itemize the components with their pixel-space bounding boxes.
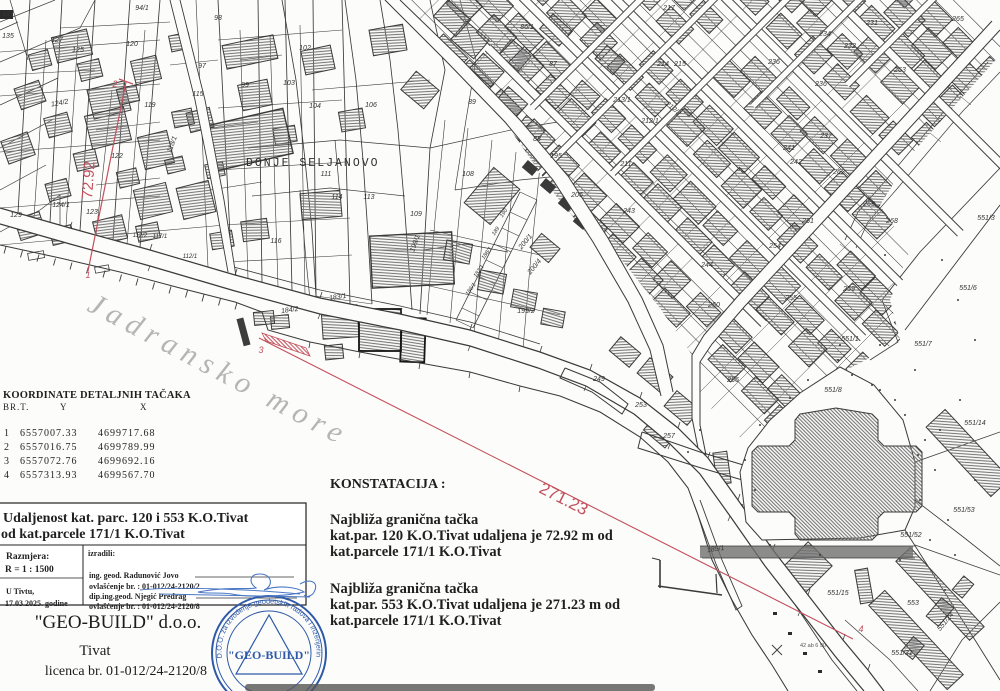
svg-text:2: 2 xyxy=(111,79,117,89)
svg-text:DONJE SELJANOVO: DONJE SELJANOVO xyxy=(246,157,380,170)
svg-text:115: 115 xyxy=(192,91,203,98)
svg-text:od kat.parcele 171/1 K.O.Tiva: od kat.parcele 171/1 K.O.Tivat xyxy=(1,527,185,542)
svg-text:116: 116 xyxy=(270,238,281,245)
svg-text:42 ab 6 90: 42 ab 6 90 xyxy=(800,643,826,649)
svg-text:Udaljenost kat. parc. 120 i: Udaljenost kat. parc. 120 i 553 K.O.Tiva… xyxy=(3,511,249,526)
svg-text:Najbliža granična tačka: Najbliža granična tačka xyxy=(330,512,479,528)
svg-text:551/1: 551/1 xyxy=(841,336,859,343)
svg-text:4: 4 xyxy=(4,470,10,481)
svg-text:1: 1 xyxy=(4,428,10,439)
svg-text:114: 114 xyxy=(331,194,342,201)
svg-text:125: 125 xyxy=(72,47,84,54)
svg-text:123: 123 xyxy=(86,209,98,216)
svg-text:250: 250 xyxy=(707,302,720,309)
svg-text:269: 269 xyxy=(862,201,875,208)
svg-text:232: 232 xyxy=(843,43,856,50)
svg-text:Razmjera:: Razmjera: xyxy=(6,552,49,562)
svg-text:Tivat: Tivat xyxy=(79,643,111,659)
svg-text:izradili:: izradili: xyxy=(88,549,115,558)
svg-text:551/8: 551/8 xyxy=(824,387,842,394)
svg-text:2: 2 xyxy=(4,442,10,453)
svg-text:88: 88 xyxy=(533,136,541,143)
svg-text:6557007.33: 6557007.33 xyxy=(20,428,78,439)
svg-text:4699692.16: 4699692.16 xyxy=(98,456,156,467)
svg-text:ovlašćenje br. : 01-012/24-212: ovlašćenje br. : 01-012/24-2120/8 xyxy=(89,602,200,611)
svg-text:212/1: 212/1 xyxy=(640,118,659,125)
svg-text:4699567.70: 4699567.70 xyxy=(98,470,156,481)
svg-text:72.92: 72.92 xyxy=(79,161,99,200)
svg-text:4699717.68: 4699717.68 xyxy=(98,428,156,439)
svg-text:551/53: 551/53 xyxy=(953,507,975,514)
svg-text:R = 1 : 1500: R = 1 : 1500 xyxy=(5,565,54,575)
svg-text:6557016.75: 6557016.75 xyxy=(20,442,78,453)
svg-text:551/14: 551/14 xyxy=(964,420,986,427)
svg-text:KONSTATACIJA :: KONSTATACIJA : xyxy=(330,477,446,492)
svg-text:551/6: 551/6 xyxy=(959,285,977,292)
svg-text:kat.par. 120 K.O.Tivat udal: kat.par. 120 K.O.Tivat udaljena je 72.92… xyxy=(330,528,613,544)
svg-text:217: 217 xyxy=(662,5,676,12)
svg-text:dip.ing.geod. Njegić Predrag: dip.ing.geod. Njegić Predrag xyxy=(89,592,186,601)
svg-text:87: 87 xyxy=(549,61,558,68)
svg-text:120: 120 xyxy=(126,41,138,48)
svg-text:254: 254 xyxy=(768,243,781,250)
svg-text:253: 253 xyxy=(634,402,647,409)
svg-text:551/52: 551/52 xyxy=(900,532,922,539)
svg-text:241: 241 xyxy=(782,145,795,152)
svg-text:127: 127 xyxy=(51,37,64,44)
svg-text:106: 106 xyxy=(365,102,377,109)
svg-text:259: 259 xyxy=(842,286,855,293)
svg-text:129: 129 xyxy=(10,212,22,219)
svg-text:X: X xyxy=(140,402,147,412)
svg-text:94/1: 94/1 xyxy=(135,5,149,12)
svg-text:BR.T.: BR.T. xyxy=(3,402,29,412)
svg-text:551/3: 551/3 xyxy=(977,215,995,222)
svg-text:"GEO-BUILD": "GEO-BUILD" xyxy=(228,648,310,662)
svg-text:117/1: 117/1 xyxy=(153,234,168,240)
svg-text:108: 108 xyxy=(462,171,474,178)
svg-text:kat.parcele 171/1 K.O.Tivat: kat.parcele 171/1 K.O.Tivat xyxy=(330,544,502,560)
svg-text:119: 119 xyxy=(144,102,155,109)
svg-text:89: 89 xyxy=(468,99,476,106)
svg-text:6557313.93: 6557313.93 xyxy=(20,470,78,481)
svg-text:3: 3 xyxy=(258,345,263,355)
svg-text:551/31: 551/31 xyxy=(891,650,913,657)
svg-text:99: 99 xyxy=(241,82,249,89)
svg-text:4699789.99: 4699789.99 xyxy=(98,442,156,453)
svg-text:242: 242 xyxy=(789,159,802,166)
svg-text:86/1: 86/1 xyxy=(520,24,534,31)
svg-text:551/7: 551/7 xyxy=(914,341,933,348)
svg-text:243: 243 xyxy=(622,208,635,215)
svg-text:262: 262 xyxy=(832,169,845,176)
svg-text:3: 3 xyxy=(4,456,10,467)
svg-text:215: 215 xyxy=(673,61,686,68)
svg-text:kat.parcele 171/1 K.O.Tivat: kat.parcele 171/1 K.O.Tivat xyxy=(330,613,502,629)
svg-text:Y: Y xyxy=(60,402,67,412)
svg-text:122: 122 xyxy=(111,153,123,160)
svg-text:124/1: 124/1 xyxy=(52,202,70,209)
svg-text:licenca br. 01-012/24-2120/8: licenca br. 01-012/24-2120/8 xyxy=(45,664,207,679)
svg-text:268: 268 xyxy=(885,218,898,225)
svg-text:261: 261 xyxy=(801,218,814,225)
svg-text:kat.par. 553 K.O.Tivat udal: kat.par. 553 K.O.Tivat udaljena je 271.2… xyxy=(330,597,620,613)
svg-text:551/15: 551/15 xyxy=(827,590,849,597)
svg-text:KOORDINATE DETALJNIH TAČAKA: KOORDINATE DETALJNIH TAČAKA xyxy=(3,388,191,401)
svg-text:256: 256 xyxy=(726,377,739,384)
svg-text:98: 98 xyxy=(214,15,222,22)
svg-text:Najbliža granična tačka: Najbliža granična tačka xyxy=(330,581,479,597)
svg-text:97: 97 xyxy=(198,63,207,70)
svg-text:236: 236 xyxy=(814,81,827,88)
svg-text:236: 236 xyxy=(767,59,780,66)
svg-text:113: 113 xyxy=(363,194,374,201)
svg-text:265: 265 xyxy=(951,16,964,23)
svg-text:103: 103 xyxy=(283,80,295,87)
svg-text:211: 211 xyxy=(619,161,631,168)
svg-text:206: 206 xyxy=(570,192,583,199)
svg-text:231: 231 xyxy=(865,20,878,27)
svg-text:234: 234 xyxy=(818,31,831,38)
svg-text:553: 553 xyxy=(907,600,919,607)
svg-text:263: 263 xyxy=(893,67,906,74)
svg-text:237: 237 xyxy=(819,133,833,140)
svg-text:135: 135 xyxy=(2,33,14,40)
svg-text:214: 214 xyxy=(656,61,669,68)
svg-text:17.03.2025. godine: 17.03.2025. godine xyxy=(5,599,68,608)
svg-text:112/2: 112/2 xyxy=(133,233,148,239)
svg-text:109: 109 xyxy=(410,211,422,218)
svg-text:199/2: 199/2 xyxy=(517,308,535,315)
svg-text:4: 4 xyxy=(858,624,863,634)
svg-text:112/1: 112/1 xyxy=(183,254,198,260)
svg-text:111: 111 xyxy=(321,171,332,178)
svg-text:255: 255 xyxy=(784,295,797,302)
svg-text:"GEO-BUILD" d.o.o.: "GEO-BUILD" d.o.o. xyxy=(35,612,201,633)
svg-text:244: 244 xyxy=(700,262,713,269)
svg-text:102: 102 xyxy=(299,45,311,52)
svg-text:257: 257 xyxy=(662,433,676,440)
svg-text:141: 141 xyxy=(2,11,14,18)
svg-text:6557072.76: 6557072.76 xyxy=(20,456,78,467)
svg-text:213/1: 213/1 xyxy=(612,97,631,104)
svg-text:ing. geod. Radunović Jovo: ing. geod. Radunović Jovo xyxy=(89,571,179,580)
svg-text:249: 249 xyxy=(592,376,605,383)
svg-text:195: 195 xyxy=(550,153,562,160)
svg-text:1: 1 xyxy=(85,270,90,280)
svg-text:U Tivtu,: U Tivtu, xyxy=(6,587,34,596)
svg-text:104: 104 xyxy=(309,103,321,110)
